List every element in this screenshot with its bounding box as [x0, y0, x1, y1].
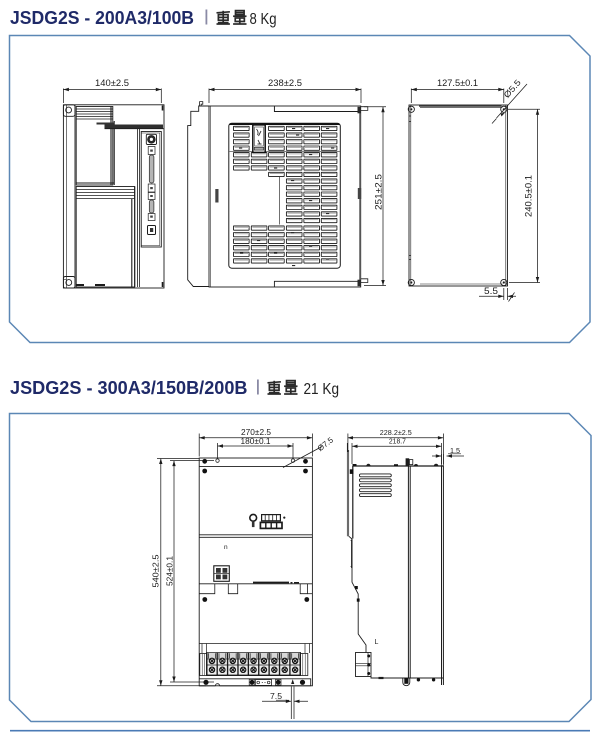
- svg-text:n: n: [224, 544, 228, 551]
- svg-text:540±2.5: 540±2.5: [151, 554, 160, 588]
- svg-text:8 Kg: 8 Kg: [250, 11, 277, 28]
- svg-text:251±2.5: 251±2.5: [373, 174, 384, 210]
- svg-text:5.5: 5.5: [484, 286, 498, 297]
- svg-text:270±2.5: 270±2.5: [241, 428, 272, 437]
- svg-text:140±2.5: 140±2.5: [95, 78, 129, 89]
- svg-text:JSDG2S - 300A3/150B/200B: JSDG2S - 300A3/150B/200B: [10, 377, 248, 398]
- svg-text:218.7: 218.7: [389, 439, 406, 446]
- svg-text:7.5: 7.5: [270, 692, 283, 701]
- svg-text:21 Kg: 21 Kg: [304, 381, 340, 398]
- svg-text:238±2.5: 238±2.5: [268, 78, 302, 89]
- svg-text:240.5±0.1: 240.5±0.1: [524, 175, 535, 217]
- svg-text:524±0.1: 524±0.1: [166, 555, 175, 586]
- svg-text:228.2±2.5: 228.2±2.5: [380, 430, 412, 437]
- svg-text:JSDG2S - 200A3/100B: JSDG2S - 200A3/100B: [10, 7, 194, 28]
- svg-text:180±0.1: 180±0.1: [241, 437, 272, 446]
- svg-text:127.5±0.1: 127.5±0.1: [437, 78, 478, 89]
- svg-text:L: L: [375, 639, 379, 646]
